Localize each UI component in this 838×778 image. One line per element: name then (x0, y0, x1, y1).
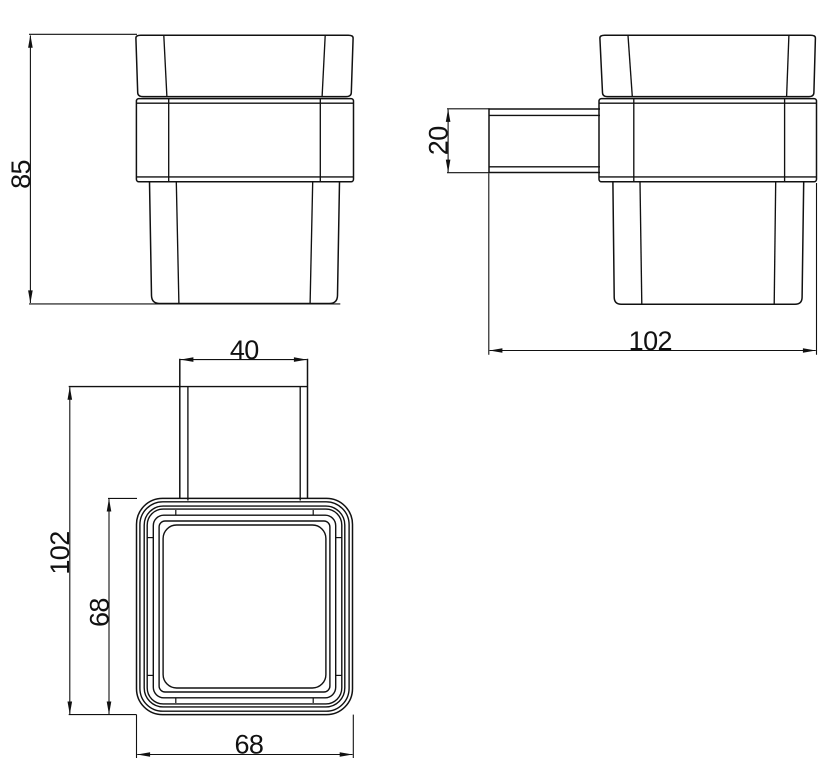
svg-text:40: 40 (230, 335, 259, 365)
svg-text:102: 102 (45, 531, 75, 574)
svg-text:68: 68 (234, 730, 263, 760)
svg-text:85: 85 (6, 160, 36, 189)
svg-text:20: 20 (423, 126, 453, 155)
svg-text:102: 102 (629, 326, 672, 356)
svg-text:68: 68 (84, 598, 114, 627)
